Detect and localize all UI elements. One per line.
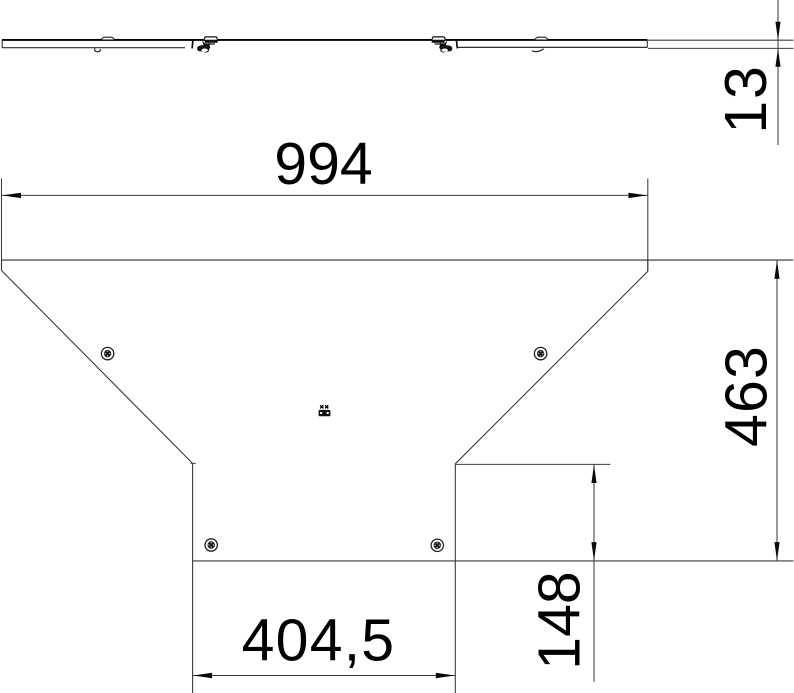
svg-text:148: 148 (527, 571, 593, 669)
svg-text:463: 463 (714, 345, 780, 447)
svg-text:404,5: 404,5 (242, 608, 396, 674)
svg-text:13: 13 (713, 64, 779, 133)
svg-text:994: 994 (274, 131, 372, 197)
